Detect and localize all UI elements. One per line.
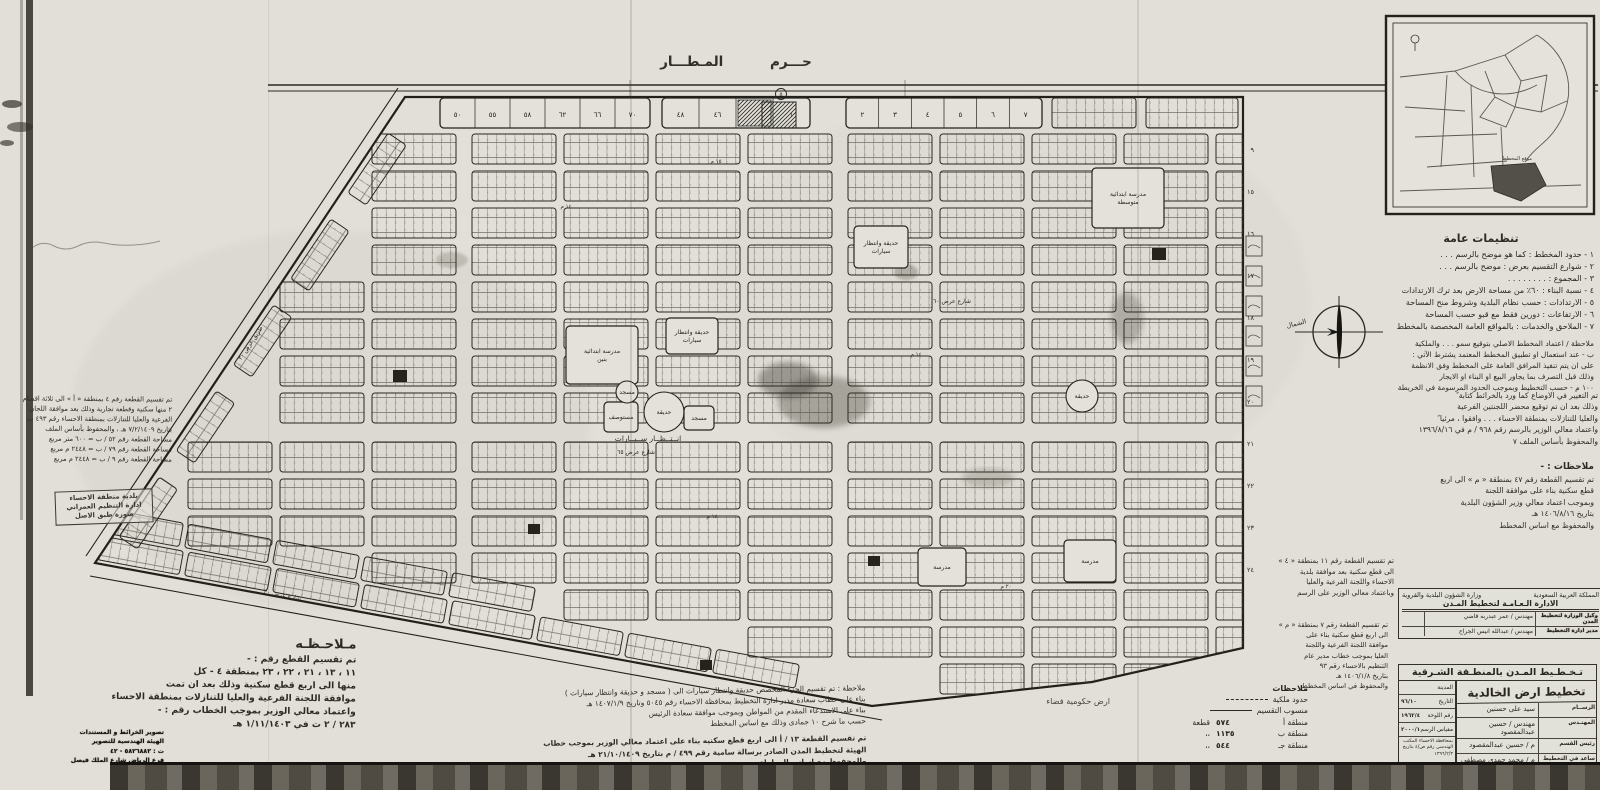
feature-label: مدرسة ابتدائية bbox=[584, 348, 620, 355]
note-line: تم التغيير في الاوضاع كما ورد بالخرائط ك… bbox=[1254, 390, 1598, 401]
city-block bbox=[564, 479, 648, 509]
staff-row: الرســامسيد على حسنين bbox=[1457, 703, 1596, 718]
city-block bbox=[537, 617, 624, 656]
note-line: والعليا للتنازلات بمنطقة الاحساء . . . و… bbox=[1254, 413, 1598, 424]
plot-number: ٥ bbox=[958, 111, 962, 119]
city-block bbox=[564, 245, 648, 275]
plot-number: ٦ bbox=[991, 111, 995, 119]
note-line: الفرعية والعليا للتنازلات بمنطقة الاحساء… bbox=[2, 414, 172, 425]
city-block bbox=[1032, 664, 1116, 694]
city-block bbox=[848, 319, 932, 349]
city-block bbox=[1032, 134, 1116, 164]
note-line: تم تقسيم القطعة رقم ٤٧ بمنطقة « م » الى … bbox=[1300, 474, 1594, 485]
city-block bbox=[656, 245, 740, 275]
inset-key-map: موقع المخطط bbox=[1386, 16, 1594, 214]
city-block bbox=[848, 442, 932, 472]
official-title: وكيل الوزارة لتخطيط المدن bbox=[1535, 612, 1599, 626]
city-block bbox=[1032, 479, 1116, 509]
city-block bbox=[1032, 319, 1116, 349]
feature-label: مسجد bbox=[619, 389, 635, 396]
city-block bbox=[748, 245, 832, 275]
edge-block-number: ٢٣ bbox=[1247, 524, 1254, 532]
street-label: ١٤ م bbox=[706, 514, 717, 520]
city-block bbox=[564, 134, 648, 164]
city-block bbox=[748, 627, 832, 657]
city-block bbox=[656, 134, 740, 164]
plot-number: ٤ bbox=[926, 111, 930, 119]
city-block bbox=[1032, 627, 1116, 657]
city-block bbox=[564, 171, 648, 201]
city-block bbox=[564, 442, 648, 472]
regulation-subitem: وذلك قبل التصرف بما يجاور البيع او البنا… bbox=[1368, 371, 1594, 382]
zone-name: منطقة ب bbox=[1256, 729, 1308, 738]
city-block bbox=[748, 319, 832, 349]
city-block bbox=[848, 171, 932, 201]
regulation-subitem: ملاحظة / اعتماد المخطط الاصلي بتوقيع سمو… bbox=[1368, 338, 1594, 349]
staff-name: مهندس / حسين عبدالمقصود bbox=[1457, 718, 1538, 738]
project-title: تخطيط ارض الخالدية bbox=[1457, 680, 1596, 704]
regulation-item: ٦ - الارتفاعات : دورين فقط مع قبو حسب ال… bbox=[1368, 309, 1594, 321]
regulation-item: ٣ - المجموع : . . . . . . . . bbox=[1368, 273, 1594, 285]
city-block bbox=[748, 442, 832, 472]
city-block bbox=[280, 393, 364, 423]
legend-line-row: منسوب التقسيم bbox=[1150, 706, 1308, 715]
feature-label: حديقة وانتظار bbox=[863, 240, 899, 247]
city-block bbox=[748, 553, 832, 583]
city-block bbox=[1216, 479, 1264, 509]
stamp-line: الهيئة الهندسية للتصوير bbox=[36, 737, 164, 746]
city-block bbox=[848, 134, 932, 164]
note-line: بتاريخ ١٤٠٦/٨/١٦ هـ bbox=[1300, 508, 1594, 519]
city-block bbox=[280, 282, 364, 312]
plot-number: ٤٨ bbox=[677, 111, 685, 119]
official-title: مدير ادارة التخطيط bbox=[1535, 627, 1599, 636]
city-block bbox=[372, 442, 456, 472]
zone-count: ١١٣٥ bbox=[1216, 729, 1250, 738]
city-block bbox=[280, 442, 364, 472]
drawing-info-cell: مقياس الرسم٢٠٠٠/١ bbox=[1399, 723, 1455, 737]
official-empty-cell bbox=[1402, 627, 1424, 636]
municipality-stamp: بلدية منطقة الاحساءادارة التنظيم العمران… bbox=[54, 488, 153, 525]
note-line: التنظيم بالاحساء رقم ٩٣ bbox=[1250, 661, 1388, 671]
city-block bbox=[940, 319, 1024, 349]
city-block bbox=[1052, 98, 1136, 128]
official-empty-cell bbox=[1402, 612, 1424, 626]
edge-block-number: ١٦ bbox=[1247, 230, 1254, 238]
city-block bbox=[748, 590, 832, 620]
regulation-subitem: على ان يتم تنفيذ المرافق العامة على المخ… bbox=[1368, 360, 1594, 371]
legend-zone-row: منطقة ب١١٣٥،، bbox=[1150, 729, 1308, 738]
info-value: ٢٠٠٠/١ bbox=[1401, 727, 1420, 733]
regulations-panel: تنظيمات عامة ١ - حدود المخطط : كما هو مو… bbox=[1368, 232, 1594, 394]
city-block bbox=[1032, 245, 1116, 275]
plot7-note-paragraph: تم تقسيم القطعة رقم ٧ بمنطقة « م »الى ار… bbox=[1250, 620, 1388, 691]
note-line: وبموجب اعتماد معالي وزير الشؤون البلدية bbox=[1300, 497, 1594, 508]
city-block bbox=[1032, 282, 1116, 312]
plot-number: ٥٨ bbox=[524, 111, 532, 119]
note-line: الاحساء واللجنة الفرعية والعليا bbox=[1254, 577, 1394, 588]
city-block bbox=[1032, 442, 1116, 472]
street-label: انــتــظــار ســيــارات bbox=[615, 434, 681, 443]
info-value: ١٩٦٢/٤ bbox=[1401, 713, 1420, 719]
feature-label: بنين bbox=[597, 356, 607, 363]
city-block bbox=[748, 479, 832, 509]
note-line: الى اربع قطع سكنية بناء على bbox=[1250, 630, 1388, 640]
city-block bbox=[940, 479, 1024, 509]
city-block bbox=[564, 553, 648, 583]
city-block bbox=[940, 664, 1024, 694]
note-line: تم تقسيم القطعة رقم ٧ بمنطقة « م » bbox=[1250, 620, 1388, 630]
note-line: وذلك بعد ان تم توقيع محضر اللجنتين الفرع… bbox=[1254, 401, 1598, 412]
corner-stamp: تصوير الخرائط و المستنداتالهيئة الهندسية… bbox=[36, 728, 164, 765]
solid-site bbox=[393, 370, 407, 382]
edge-block-number: ٢١ bbox=[1247, 440, 1254, 448]
plot-number: ٥٥ bbox=[489, 111, 497, 119]
city-block bbox=[656, 171, 740, 201]
zone-unit: ،، bbox=[1205, 729, 1210, 738]
regulation-item: ٥ - الارتدادات : حسب نظام البلدية وشروط … bbox=[1368, 297, 1594, 309]
city-block bbox=[848, 516, 932, 546]
mid-notes-heading: ملاحظات : - bbox=[1300, 462, 1594, 472]
note-line: بتاريخ ١٤٠٦/١/٨ هـ bbox=[1250, 671, 1388, 681]
solid-site bbox=[700, 660, 712, 670]
officials-rows: وكيل الوزارة لتخطيط المدنمهندس / عمر عبد… bbox=[1402, 611, 1599, 636]
feature-label: مدرسة ابتدائية bbox=[1110, 191, 1146, 198]
city-block bbox=[472, 134, 556, 164]
staff-row: المهنـدسمهندس / حسين عبدالمقصود bbox=[1457, 718, 1596, 739]
city-block bbox=[940, 442, 1024, 472]
feature-label: حديقة bbox=[1075, 393, 1090, 400]
city-block bbox=[625, 633, 712, 672]
info-label: المدينة bbox=[1437, 685, 1453, 691]
street-label: ١٤ م bbox=[560, 204, 571, 210]
city-block bbox=[564, 282, 648, 312]
city-block bbox=[940, 516, 1024, 546]
note-line: قطع سكنية بناء على موافقة اللجنة bbox=[1300, 485, 1594, 496]
city-block bbox=[472, 356, 556, 386]
zone-unit: قطعة bbox=[1192, 718, 1210, 727]
city-block bbox=[940, 590, 1024, 620]
legend-line-label: منسوب التقسيم bbox=[1257, 706, 1308, 715]
feature-label: متوسطة bbox=[1117, 199, 1138, 206]
edge-block-number: ٢٠ bbox=[1247, 398, 1254, 406]
street-label: ١٥ م bbox=[710, 159, 721, 165]
city-block bbox=[472, 516, 556, 546]
drawing-info-cell: رقم اللوحة١٩٦٢/٤ bbox=[1399, 709, 1455, 723]
city-block bbox=[656, 590, 740, 620]
fold-crease bbox=[1137, 0, 1139, 762]
note-line: الى قطع سكنية بعد موافقة بلدية bbox=[1254, 567, 1394, 578]
note-line: والمحفوظ مع اساس المخطط bbox=[1300, 520, 1594, 531]
staff-name: م / حسين عبدالمقصود bbox=[1457, 739, 1538, 753]
zone-name: منطقة جـ bbox=[1256, 741, 1308, 750]
city-block bbox=[372, 282, 456, 312]
city-block bbox=[656, 282, 740, 312]
legend-line-label: حدود ملكية bbox=[1273, 695, 1308, 704]
city-block bbox=[564, 516, 648, 546]
regulation-subitem: ب - عند استعمال او تطبيق المخطط المعتمد … bbox=[1368, 349, 1594, 360]
note-line: وباعتماد معالي الوزير على الرسم bbox=[1254, 588, 1394, 599]
city-block bbox=[848, 479, 932, 509]
staff-name: سيد على حسنين bbox=[1457, 703, 1538, 717]
official-name: مهندس / عبدالله انيس الجراح bbox=[1424, 627, 1535, 636]
city-block bbox=[848, 590, 932, 620]
note-line: مساحة القطعة رقم ٩ / ب = ٢٤٤٨ م مربع bbox=[2, 454, 172, 465]
plot-number: ٢ bbox=[860, 111, 864, 119]
ministry-title-box: المملكة العربية السعودية وزارة الشؤون ال… bbox=[1398, 588, 1600, 639]
plot-number: ٣ bbox=[893, 111, 897, 119]
scanned-cadastral-map-sheet: ٦٤ ٦٤ bbox=[0, 0, 1600, 790]
solid-site bbox=[1152, 248, 1166, 260]
city-block bbox=[472, 245, 556, 275]
region-strip: تـخـطـيط المـدن بالمنطـقة الشـرقية bbox=[1399, 665, 1596, 681]
zone-unit: ،، bbox=[1205, 741, 1210, 750]
legend-panel: ملاحظات حدود ملكيةمنسوب التقسيم منطقة أ٥… bbox=[1150, 684, 1308, 752]
city-block bbox=[656, 208, 740, 238]
city-block bbox=[472, 208, 556, 238]
city-block bbox=[472, 282, 556, 312]
city-block bbox=[280, 356, 364, 386]
street-label: شارع عرض ٦٥ bbox=[617, 449, 655, 456]
official-row: مدير ادارة التخطيطمهندس / عبدالله انيس ا… bbox=[1402, 626, 1599, 636]
city-block bbox=[940, 208, 1024, 238]
city-block bbox=[564, 590, 648, 620]
feature-label: سيارات bbox=[683, 337, 702, 344]
drawing-info-cell: المدينة bbox=[1399, 681, 1455, 695]
city-block bbox=[656, 442, 740, 472]
edge-block-number: ١٥ bbox=[1247, 188, 1254, 196]
legend-line-row: حدود ملكية bbox=[1150, 695, 1308, 704]
city-block bbox=[280, 319, 364, 349]
mid-notes-block: ملاحظات : - تم تقسيم القطعة رقم ٤٧ بمنطق… bbox=[1300, 462, 1594, 531]
plot-number: ٧ bbox=[1024, 111, 1028, 119]
note-line: تم تقسيم القطعة رقم ٤ بمنطقة « أ » الى ث… bbox=[2, 393, 172, 404]
legend-zone-counts: منطقة أ٥٧٤قطعةمنطقة ب١١٣٥،،منطقة جـ٥٤٤،، bbox=[1150, 718, 1308, 750]
regulation-item: ١ - حدود المخطط : كما هو موضح بالرسم . .… bbox=[1368, 249, 1594, 261]
note-line: والمحفوظ بأساس الملف ٧ bbox=[1254, 436, 1598, 447]
fold-crease bbox=[268, 0, 269, 762]
city-block bbox=[656, 479, 740, 509]
city-block bbox=[748, 516, 832, 546]
edge-block-number: ٢٢ bbox=[1247, 482, 1254, 490]
city-block bbox=[940, 393, 1024, 423]
info-value: ٩٦/١٠ bbox=[1401, 699, 1417, 705]
city-block bbox=[940, 171, 1024, 201]
stamp-line: تصوير الخرائط و المستندات bbox=[36, 728, 164, 737]
edge-block-number: ١٩ bbox=[1247, 356, 1254, 364]
mid-note-paragraph-1: تم تقسيم القطعة رقم ٤٧ بمنطقة « م » الى … bbox=[1300, 474, 1594, 531]
stamp-line: ت : ٥٨٢٦٨٨٢ - ٤٢ bbox=[36, 747, 164, 756]
zone-count: ٥٧٤ bbox=[1216, 718, 1250, 727]
legend-line-samples: حدود ملكيةمنسوب التقسيم bbox=[1150, 695, 1308, 715]
feature-label: سيارات bbox=[872, 248, 891, 255]
city-block bbox=[940, 282, 1024, 312]
city-block bbox=[372, 356, 456, 386]
zone-count: ٥٤٤ bbox=[1216, 741, 1250, 750]
city-block bbox=[748, 393, 832, 423]
regulation-item: ٧ - الملاحق والخدمات : بالمواقع العامة ا… bbox=[1368, 321, 1594, 333]
city-block bbox=[280, 516, 364, 546]
city-block bbox=[656, 553, 740, 583]
city-block bbox=[748, 171, 832, 201]
change-note-paragraph: تم التغيير في الاوضاع كما ورد بالخرائط ك… bbox=[1254, 390, 1598, 447]
plot-number: ٦٢ bbox=[559, 111, 567, 119]
city-block bbox=[748, 134, 832, 164]
city-block bbox=[472, 319, 556, 349]
city-block bbox=[372, 245, 456, 275]
city-block bbox=[1216, 516, 1264, 546]
street-label: ٢٠ م bbox=[1000, 584, 1011, 590]
bottom-center-notes: ملاحظة : تم تقسيم الجزء المخصص حديقة وان… bbox=[435, 682, 866, 773]
city-block bbox=[472, 171, 556, 201]
feature-label: مدرسة bbox=[1081, 558, 1099, 565]
staff-title: المهنـدس bbox=[1538, 718, 1596, 738]
city-block bbox=[748, 208, 832, 238]
city-block bbox=[748, 282, 832, 312]
legend-zone-row: منطقة جـ٥٤٤،، bbox=[1150, 741, 1308, 750]
city-block bbox=[848, 282, 932, 312]
city-block bbox=[940, 245, 1024, 275]
info-label: التاريخ bbox=[1438, 699, 1453, 705]
official-name: مهندس / عمر عبدربه قاضي bbox=[1424, 612, 1535, 626]
ministry-label: وزارة الشؤون البلدية والقروية bbox=[1402, 591, 1481, 599]
city-block bbox=[1032, 356, 1116, 386]
fold-crease bbox=[630, 0, 632, 762]
note-line: تم تقسيم القطعة رقم ١١ بمنطقة « ٤ » bbox=[1254, 556, 1394, 567]
street-label: شارع عرض ٦٠ bbox=[933, 298, 971, 305]
regulation-item: ٤ - نسبة البناء : ٦٠٪ من مساحة الارض بعد… bbox=[1368, 285, 1594, 297]
legend-zone-row: منطقة أ٥٧٤قطعة bbox=[1150, 718, 1308, 727]
scan-bottom-band bbox=[110, 762, 1600, 790]
city-block bbox=[848, 627, 932, 657]
plot-number: ٥٠ bbox=[454, 111, 462, 119]
staff-row: رئيس القسمم / حسين عبدالمقصود bbox=[1457, 739, 1596, 754]
department-label: الادارة الـعـامـة لتخطيط المـدن bbox=[1402, 599, 1599, 610]
bottom-left-note-heading: مـلاحـظـه bbox=[66, 634, 356, 652]
regulations-items: ١ - حدود المخطط : كما هو موضح بالرسم . .… bbox=[1368, 249, 1594, 333]
official-row: وكيل الوزارة لتخطيط المدنمهندس / عمر عبد… bbox=[1402, 611, 1599, 626]
inset-site-label: موقع المخطط bbox=[1502, 156, 1532, 162]
left-margin-notes: تم تقسيم القطعة رقم ٤ بمنطقة « أ » الى ث… bbox=[2, 393, 172, 465]
street-label: ١٤ م bbox=[910, 352, 921, 358]
vacant-land-label: ارض حكومية فضاء bbox=[980, 696, 1110, 706]
feature-label: مسجد bbox=[691, 415, 707, 422]
plot-number: ٤٦ bbox=[714, 111, 722, 119]
solid-site bbox=[868, 556, 880, 566]
info-label: مقياس الرسم bbox=[1420, 727, 1453, 733]
solid-site bbox=[528, 524, 540, 534]
city-block bbox=[280, 479, 364, 509]
city-block bbox=[372, 393, 456, 423]
bottom-left-note: مـلاحـظـه تم تقسيم القطع رقم : -١١ ، ١٣ … bbox=[66, 634, 357, 732]
feature-label: حديقة bbox=[657, 409, 672, 416]
city-block bbox=[748, 356, 832, 386]
city-block bbox=[940, 627, 1024, 657]
city-block bbox=[472, 393, 556, 423]
city-block bbox=[656, 516, 740, 546]
regulations-subitems: ملاحظة / اعتماد المخطط الاصلي بتوقيع سمو… bbox=[1368, 338, 1594, 394]
note-line: موافقة اللجنة الفرعية واللجنة bbox=[1250, 640, 1388, 650]
plot-number: ٦٦ bbox=[594, 111, 602, 119]
city-block bbox=[564, 208, 648, 238]
city-block bbox=[940, 134, 1024, 164]
airport-boundary-label: حـــرم المـطـــار bbox=[596, 54, 876, 70]
city-block bbox=[372, 479, 456, 509]
city-block bbox=[472, 479, 556, 509]
city-block bbox=[940, 356, 1024, 386]
city-block bbox=[1032, 590, 1116, 620]
city-block bbox=[1146, 98, 1238, 128]
legend-line-sample bbox=[1210, 710, 1252, 711]
edge-block-number: ٩ bbox=[1251, 146, 1255, 154]
side-note: بمحافظة الاحساء المكتب الهندسي رقم ص/٤ ب… bbox=[1399, 737, 1455, 760]
city-block bbox=[656, 356, 740, 386]
mid-note-paragraph-2: تم تقسيم القطعة رقم ١١ بمنطقة « ٤ »الى ق… bbox=[1254, 556, 1394, 598]
legend-heading: ملاحظات bbox=[1150, 684, 1308, 693]
note-line: واعتماد معالي الوزير بالرسم رقم ٩٦٨ / م … bbox=[1254, 424, 1598, 435]
feature-label: حديقة وانتظار bbox=[674, 329, 710, 336]
bottom-left-note-lines: تم تقسيم القطع رقم : -١١ ، ١٣ ، ٢١ ، ٢٢ … bbox=[66, 651, 357, 732]
drawing-info-cell: التاريخ٩٦/١٠ bbox=[1399, 695, 1455, 709]
regulation-item: ٢ - شوارع التقسيم بعرض : موضح بالرسم . .… bbox=[1368, 261, 1594, 273]
bottom-center-note-1: ملاحظة : تم تقسيم الجزء المخصص حديقة وان… bbox=[435, 682, 866, 734]
city-block bbox=[188, 479, 272, 509]
city-block bbox=[848, 393, 932, 423]
kingdom-label: المملكة العربية السعودية bbox=[1533, 591, 1599, 599]
zone-name: منطقة أ bbox=[1256, 718, 1308, 727]
city-block bbox=[848, 356, 932, 386]
city-block bbox=[472, 442, 556, 472]
staff-title: الرســام bbox=[1538, 703, 1596, 717]
staff-title: رئيس القسم bbox=[1538, 739, 1596, 753]
note-line: العليا بموجب خطاب مدير عام bbox=[1250, 651, 1388, 661]
edge-block-number: ١٨ bbox=[1247, 314, 1254, 322]
circled-mark-number: ٥ bbox=[779, 92, 782, 99]
feature-label: مدرسة bbox=[933, 564, 951, 571]
city-block bbox=[372, 208, 456, 238]
city-block bbox=[1216, 134, 1264, 164]
info-label: رقم اللوحة bbox=[1428, 713, 1453, 719]
edge-block-number: ٢٤ bbox=[1247, 566, 1254, 574]
regulations-heading: تنظيمات عامة bbox=[1368, 232, 1594, 245]
city-block bbox=[372, 319, 456, 349]
hatched-site bbox=[762, 102, 796, 128]
city-block bbox=[372, 516, 456, 546]
legend-line-sample bbox=[1226, 699, 1268, 700]
edge-block-number: ١٧ bbox=[1247, 272, 1254, 280]
